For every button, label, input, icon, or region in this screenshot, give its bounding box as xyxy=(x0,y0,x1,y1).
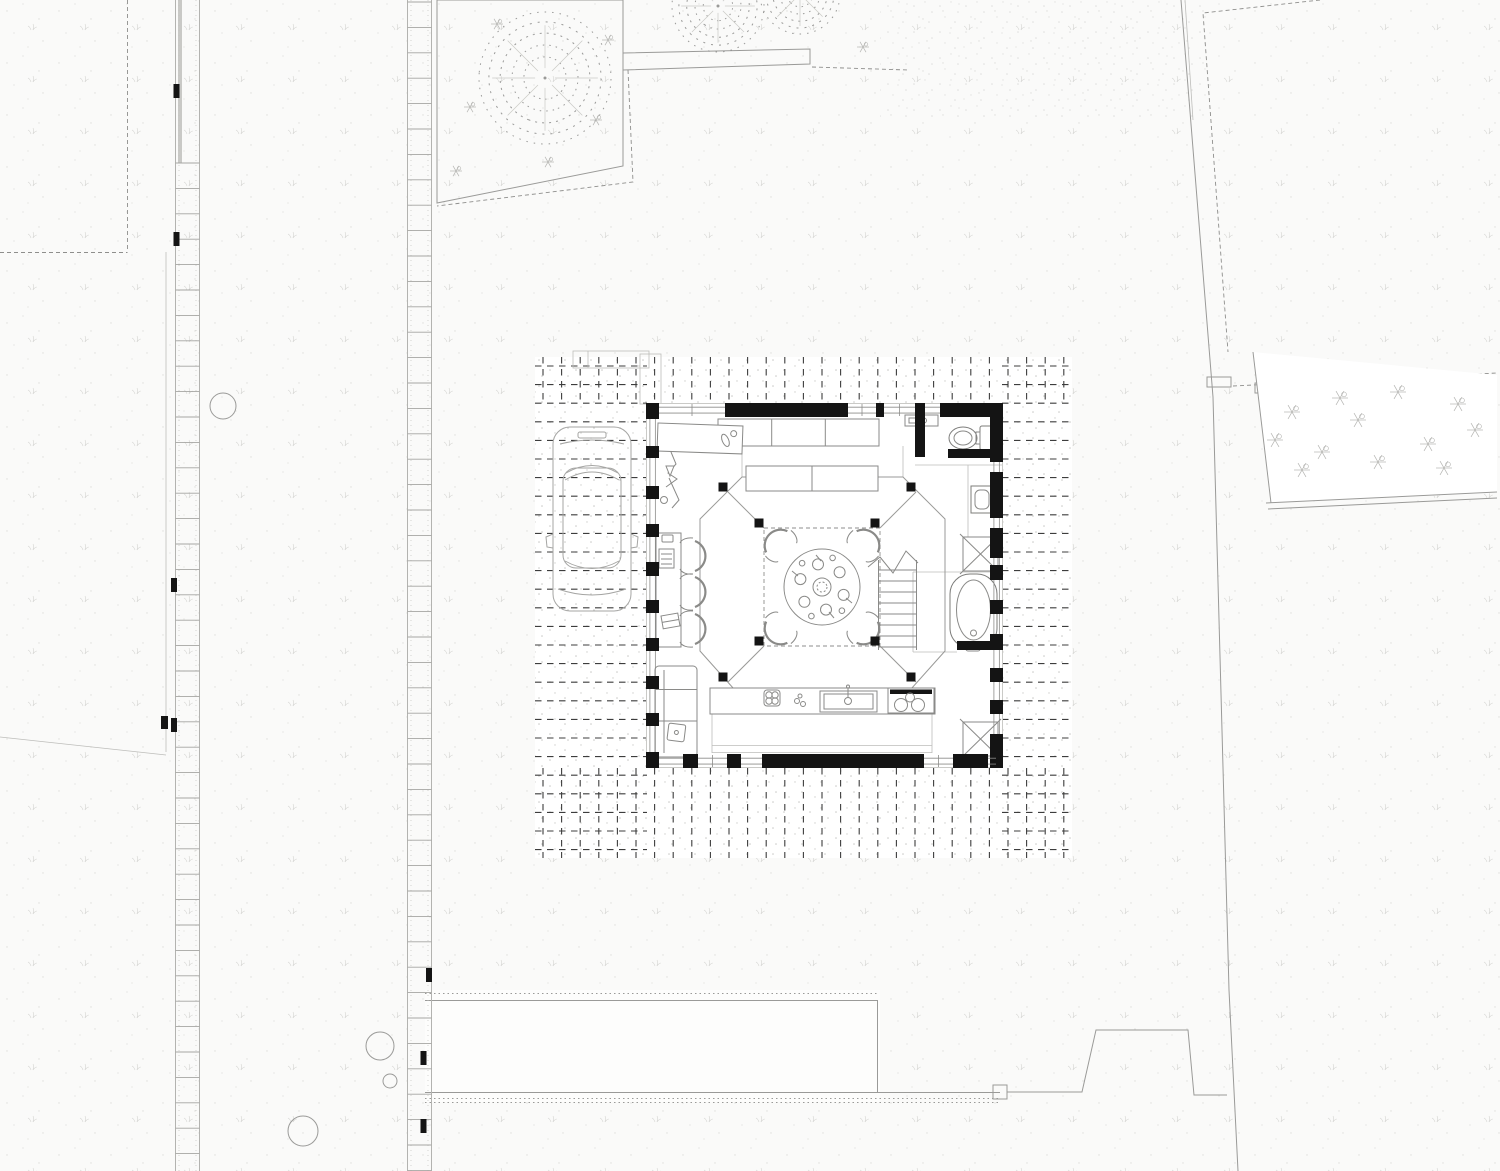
bathtub xyxy=(950,574,997,651)
kitchen xyxy=(710,685,935,714)
desk xyxy=(656,533,681,647)
boundary-tie xyxy=(161,716,168,729)
bed-fill xyxy=(1253,352,1497,503)
house-plan xyxy=(646,403,1003,768)
toilet xyxy=(949,426,992,450)
site-plan-canvas xyxy=(0,0,1500,1171)
work-table-top xyxy=(657,423,743,454)
strip-curb xyxy=(178,0,182,163)
work-table xyxy=(657,423,743,454)
sofa xyxy=(655,666,697,757)
toilet-bowl xyxy=(949,427,977,449)
site-plan-drawing xyxy=(0,0,1500,1171)
walkway-fill xyxy=(425,990,880,1102)
gravel-patch xyxy=(880,0,1210,118)
sofa-outline xyxy=(655,666,697,757)
planting-bed-right xyxy=(1253,352,1497,509)
tub-rim xyxy=(950,574,997,648)
